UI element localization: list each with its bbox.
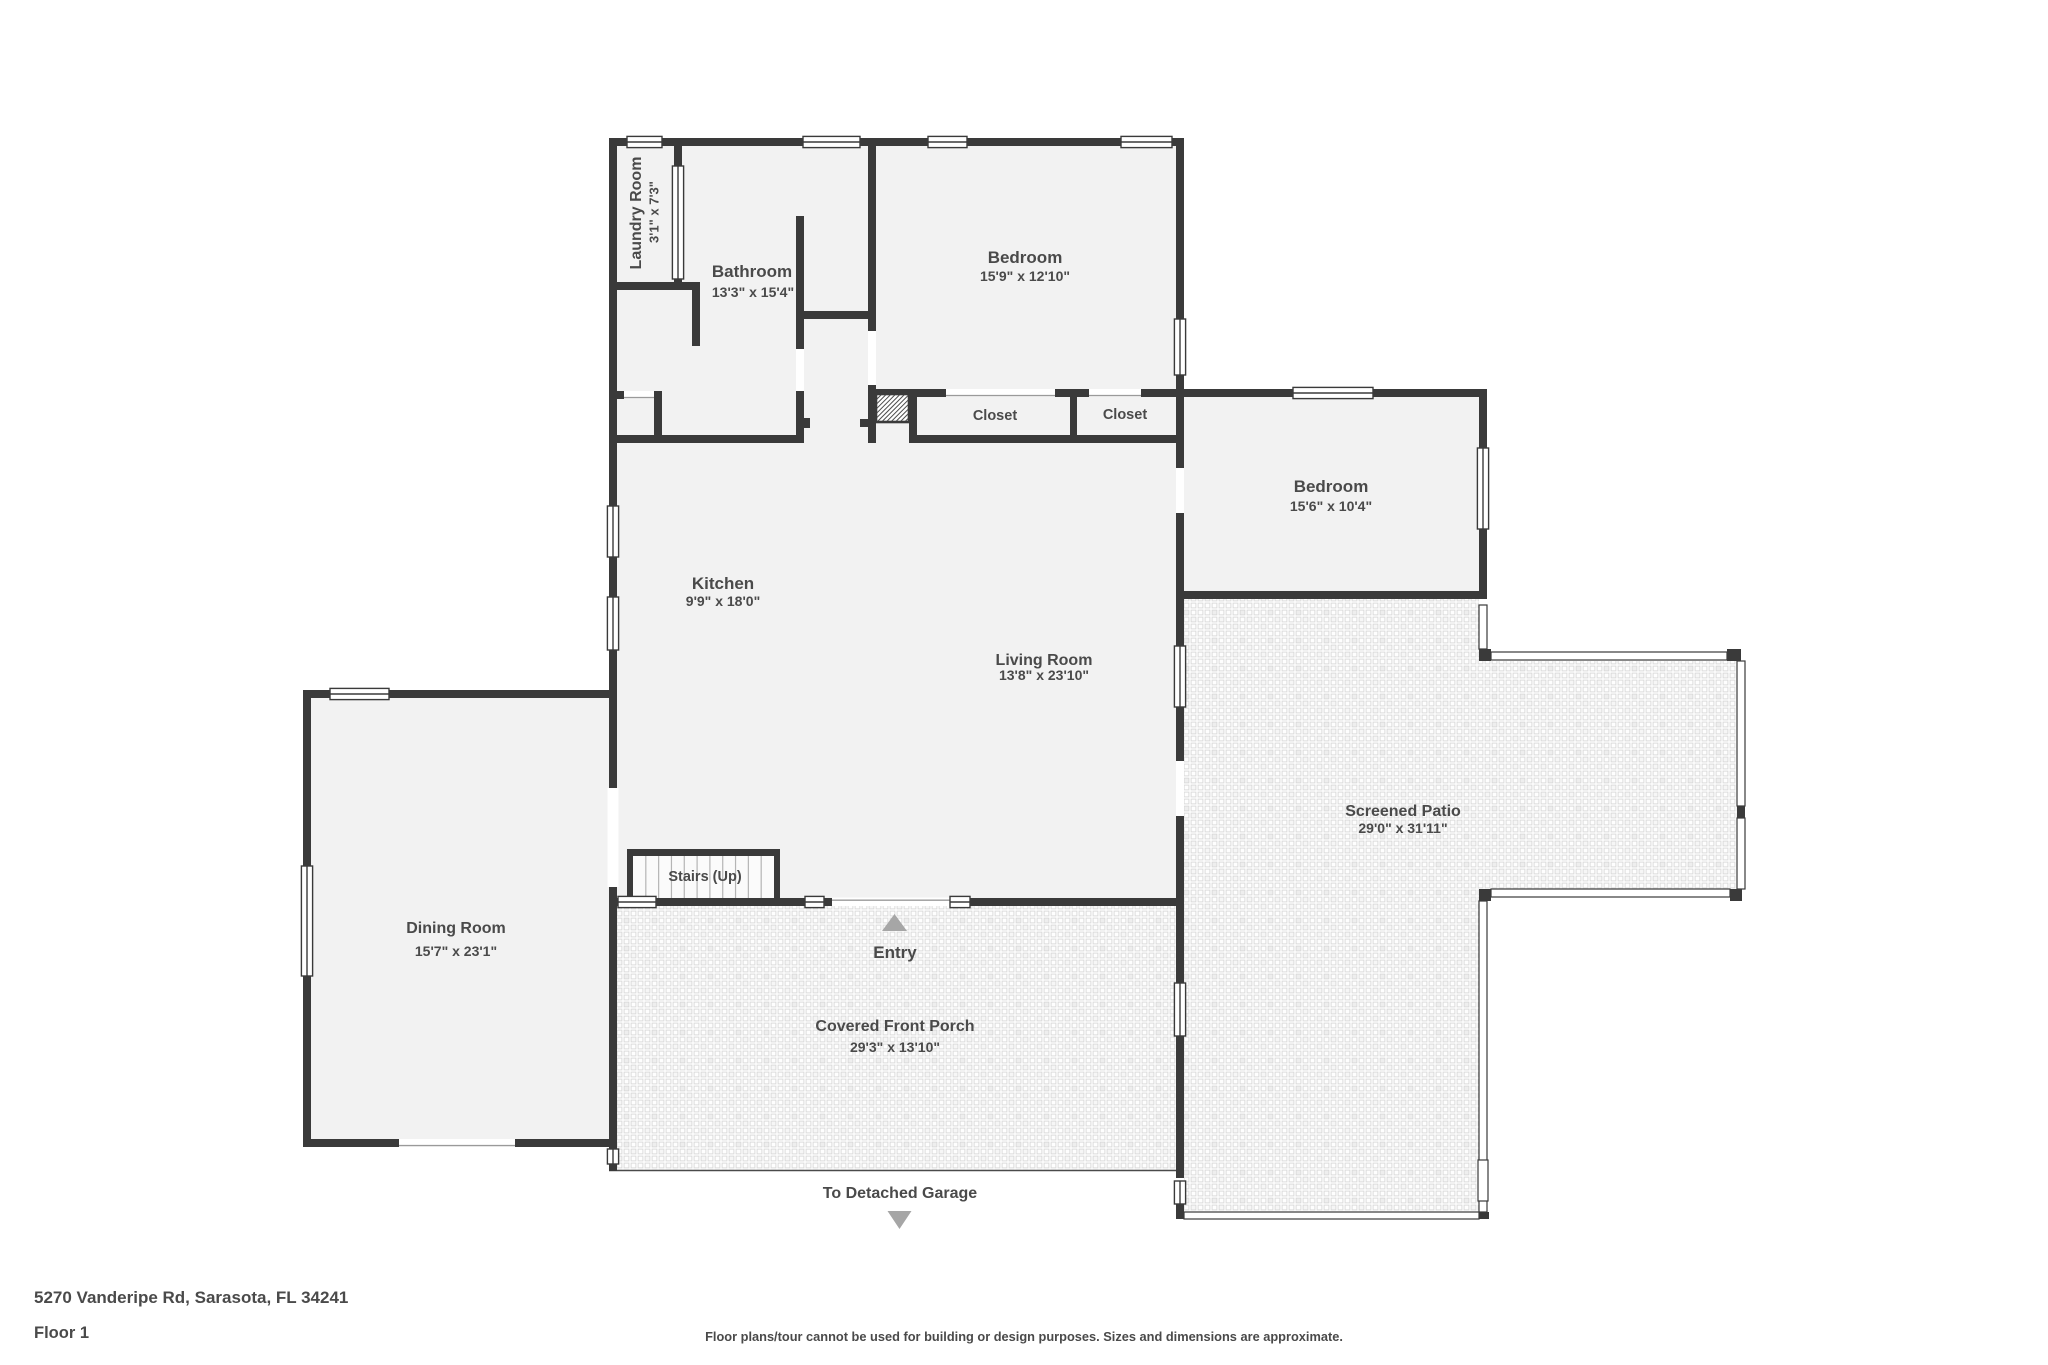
svg-text:Dining Room: Dining Room xyxy=(406,920,506,937)
svg-text:5270 Vanderipe Rd, Sarasota, F: 5270 Vanderipe Rd, Sarasota, FL 34241 xyxy=(34,1288,348,1307)
svg-text:Bathroom: Bathroom xyxy=(712,262,792,281)
svg-text:Covered Front Porch: Covered Front Porch xyxy=(815,1018,974,1035)
svg-text:15'7" x 23'1": 15'7" x 23'1" xyxy=(415,943,497,959)
svg-text:15'6" x 10'4": 15'6" x 10'4" xyxy=(1290,498,1372,514)
svg-text:9'9" x 18'0": 9'9" x 18'0" xyxy=(686,593,760,609)
svg-text:Screened Patio: Screened Patio xyxy=(1345,803,1461,820)
svg-text:29'3" x 13'10": 29'3" x 13'10" xyxy=(850,1039,940,1055)
svg-text:15'9" x 12'10": 15'9" x 12'10" xyxy=(980,268,1070,284)
svg-text:Stairs (Up): Stairs (Up) xyxy=(668,869,741,885)
svg-text:Bedroom: Bedroom xyxy=(1294,477,1369,496)
svg-text:Bedroom: Bedroom xyxy=(988,248,1063,267)
svg-text:Floor 1: Floor 1 xyxy=(34,1324,89,1342)
svg-text:13'3" x 15'4": 13'3" x 15'4" xyxy=(712,284,794,300)
svg-text:13'8" x 23'10": 13'8" x 23'10" xyxy=(999,667,1089,683)
svg-text:29'0" x 31'11": 29'0" x 31'11" xyxy=(1358,820,1447,836)
svg-text:3'1" x 7'3": 3'1" x 7'3" xyxy=(647,181,662,243)
svg-text:Kitchen: Kitchen xyxy=(692,574,754,593)
svg-text:Laundry Room: Laundry Room xyxy=(628,157,645,270)
svg-text:To Detached Garage: To Detached Garage xyxy=(823,1185,978,1202)
svg-text:Closet: Closet xyxy=(1103,407,1147,423)
svg-text:Entry: Entry xyxy=(873,943,917,962)
svg-text:Closet: Closet xyxy=(973,408,1017,424)
svg-text:Floor plans/tour cannot be use: Floor plans/tour cannot be used for buil… xyxy=(705,1329,1343,1344)
